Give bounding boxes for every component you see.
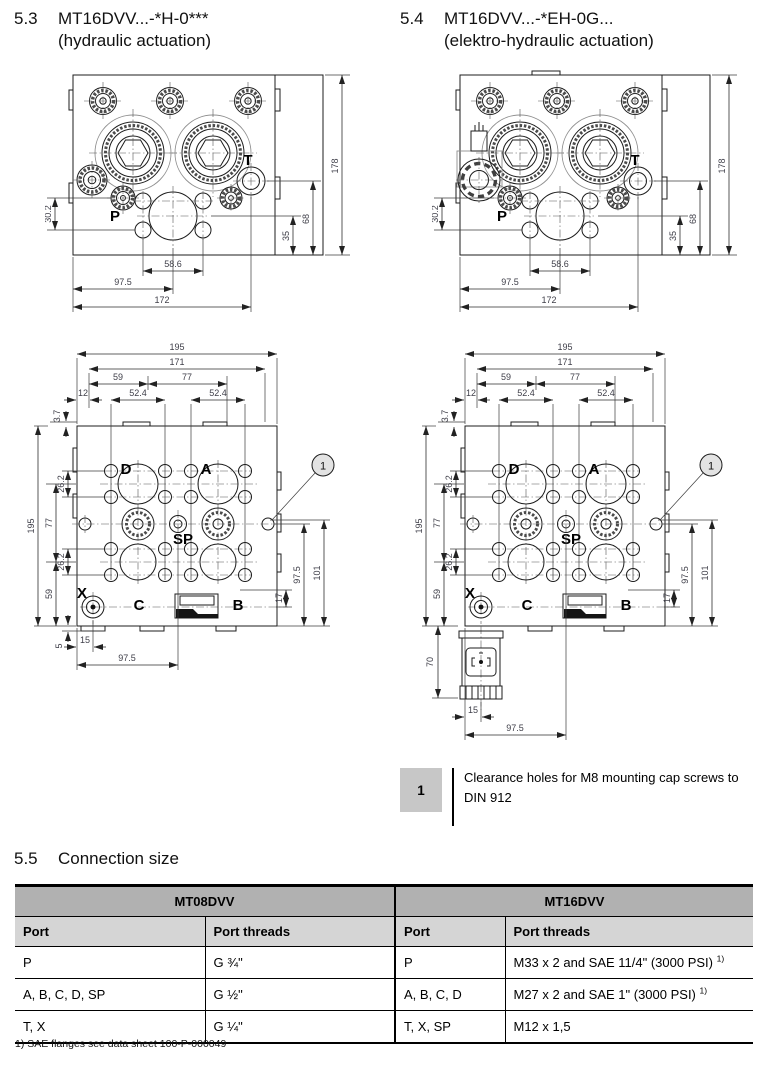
dim-171: 171	[557, 357, 572, 367]
cell-port-mt08: P	[15, 947, 205, 979]
dim-97-5-right: 97.5	[292, 566, 302, 584]
cell-port-mt16: A, B, C, D	[395, 979, 505, 1011]
dim-172: 172	[154, 295, 169, 305]
port-label-sp: SP	[561, 531, 581, 548]
cell-threads-mt16: M12 x 1,5	[505, 1011, 753, 1044]
callout-1-label: 1	[708, 461, 714, 473]
p-flange	[133, 186, 213, 246]
dim-17: 17	[274, 593, 284, 603]
dimensions: 195 171 59 77 12 52.4 52.4 3.7 195 77	[414, 342, 718, 740]
dim-52-4-a: 52.4	[209, 388, 227, 398]
dim-26-2-a: 26.2	[444, 475, 454, 493]
dim-195-top: 195	[557, 342, 572, 352]
dim-3-7: 3.7	[52, 410, 62, 423]
dim-35: 35	[668, 231, 678, 241]
dim-178: 178	[330, 158, 340, 173]
dim-15: 15	[468, 705, 478, 715]
main-cartridge-ports	[89, 109, 257, 197]
port-label-c: C	[134, 597, 145, 614]
mounting-bolts	[84, 82, 267, 120]
dim-172: 172	[541, 295, 556, 305]
section-54-heading: 5.4 MT16DVV...-*EH-0G... (elektro-hydrau…	[400, 8, 654, 52]
dim-77-top: 77	[182, 372, 192, 382]
port-label-a: A	[589, 461, 600, 478]
centerlines	[460, 404, 676, 624]
dim-59-top: 59	[113, 372, 123, 382]
drawing-53-bottom-view: D A SP C B X 1	[20, 332, 352, 677]
port-x: X	[77, 585, 104, 618]
cell-threads-mt16: M27 x 2 and SAE 1" (3000 PSI) 1)	[505, 979, 753, 1011]
dim-171: 171	[169, 357, 184, 367]
main-cartridge-ports	[476, 109, 644, 197]
port-label-sp: SP	[173, 531, 193, 548]
dim-35: 35	[281, 231, 291, 241]
table-row: P G ¾" P M33 x 2 and SAE 11/4" (3000 PSI…	[15, 947, 753, 979]
dim-59-left: 59	[44, 589, 54, 599]
section-53-number: 5.3	[14, 8, 58, 52]
cell-port-mt08: A, B, C, D, SP	[15, 979, 205, 1011]
dim-26-2-b: 26.2	[56, 553, 66, 571]
dim-12: 12	[466, 388, 476, 398]
dim-195-left: 195	[26, 518, 36, 533]
drawing-54-bottom-view: D A SP C B X	[408, 332, 740, 752]
section-54-code: MT16DVV...-*EH-0G...	[444, 9, 613, 28]
dim-97-5-bottom: 97.5	[506, 723, 524, 733]
dim-52-4-d: 52.4	[129, 388, 147, 398]
section-54-subtitle: (elektro-hydraulic actuation)	[444, 31, 654, 50]
col-header-threads-mt16: Port threads	[505, 917, 753, 947]
cell-threads-mt08: G ¾"	[205, 947, 395, 979]
solenoid-actuator	[459, 626, 503, 710]
section-53-subtitle: (hydraulic actuation)	[58, 31, 211, 50]
dim-101: 101	[700, 565, 710, 580]
footnote-ref: 1)	[717, 954, 725, 964]
dim-97-5: 97.5	[114, 277, 132, 287]
dim-12: 12	[78, 388, 88, 398]
dim-97-5-right: 97.5	[680, 566, 690, 584]
dim-52-4-a: 52.4	[597, 388, 615, 398]
mounting-bolts	[471, 82, 654, 120]
dim-26-2-a: 26.2	[56, 475, 66, 493]
col-header-port-mt16: Port	[395, 917, 505, 947]
table-footnote: 1) SAE flanges see data sheet 100-P-0000…	[15, 1038, 226, 1050]
dim-30-2: 30.2	[45, 205, 53, 223]
port-label-c: C	[522, 597, 533, 614]
port-x: X	[465, 585, 492, 618]
col-header-threads-mt08: Port threads	[205, 917, 395, 947]
port-label-t: T	[630, 152, 639, 169]
dim-15: 15	[80, 635, 90, 645]
port-label-x: X	[77, 585, 87, 602]
table-group-mt16dvv: MT16DVV	[395, 886, 753, 917]
dim-77-left: 77	[44, 518, 54, 528]
dim-59-left: 59	[432, 589, 442, 599]
col-header-port-mt08: Port	[15, 917, 205, 947]
port-p: P	[494, 182, 526, 225]
dim-59-top: 59	[501, 372, 511, 382]
table-row: A, B, C, D, SP G ½" A, B, C, D M27 x 2 a…	[15, 979, 753, 1011]
p-flange	[520, 186, 600, 246]
dim-178: 178	[717, 158, 727, 173]
port-label-d: D	[121, 461, 132, 478]
port-p: P	[107, 182, 139, 225]
ports-d-a: D A	[493, 461, 640, 504]
cell-port-mt16: T, X, SP	[395, 1011, 505, 1044]
port-label-p: P	[497, 208, 507, 225]
dim-77-top: 77	[570, 372, 580, 382]
note-badge: 1	[400, 768, 442, 812]
port-label-a: A	[201, 461, 212, 478]
port-label-b: B	[621, 597, 632, 614]
section-55-title: Connection size	[58, 848, 179, 870]
dim-97-5: 97.5	[501, 277, 519, 287]
dim-68: 68	[688, 214, 698, 224]
cell-threads-mt08: G ½"	[205, 979, 395, 1011]
cell-port-mt16: P	[395, 947, 505, 979]
dim-101: 101	[312, 565, 322, 580]
footnote-ref: 1)	[700, 986, 708, 996]
clearance-note: 1 Clearance holes for M8 mounting cap sc…	[400, 768, 762, 826]
table-group-mt08dvv: MT08DVV	[15, 886, 395, 917]
datasheet-page: 5.3 MT16DVV...-*H-0*** (hydraulic actuat…	[0, 0, 767, 1072]
port-label-x: X	[465, 585, 475, 602]
cell-threads-mt08: G ¼"	[205, 1011, 395, 1044]
dim-97-5-bottom: 97.5	[118, 653, 136, 663]
port-label-p: P	[110, 208, 120, 225]
note-divider	[452, 768, 454, 826]
dim-26-2-b: 26.2	[444, 553, 454, 571]
section-55-number: 5.5	[14, 848, 58, 870]
port-label-b: B	[233, 597, 244, 614]
port-label-d: D	[509, 461, 520, 478]
connection-size-table: MT08DVV MT16DVV Port Port threads Port P…	[15, 884, 753, 1044]
section-53-heading: 5.3 MT16DVV...-*H-0*** (hydraulic actuat…	[14, 8, 211, 52]
lever-connector	[175, 594, 218, 618]
cell-threads-mt16: M33 x 2 and SAE 11/4" (3000 PSI) 1)	[505, 947, 753, 979]
dim-17: 17	[662, 593, 672, 603]
ports-d-a: D A	[105, 461, 252, 504]
drawing-53-top-view: P T 30.2 35 68 178	[45, 65, 390, 317]
dim-5: 5	[54, 643, 64, 648]
section-53-code: MT16DVV...-*H-0***	[58, 9, 209, 28]
lever-connector	[563, 594, 606, 618]
dim-52-4-d: 52.4	[517, 388, 535, 398]
dim-30-2: 30.2	[432, 205, 440, 223]
dim-70: 70	[425, 657, 435, 667]
note-text: Clearance holes for M8 mounting cap scre…	[464, 768, 762, 807]
callout-1-label: 1	[320, 461, 326, 473]
port-label-t: T	[243, 152, 252, 169]
dim-195-left: 195	[414, 518, 424, 533]
dimensions: 30.2 35 68 178 58.6 97.5 172	[45, 75, 350, 312]
dimensions: 30.2 35 68 178 58.6 97.5 172	[432, 75, 737, 312]
dim-3-7: 3.7	[440, 410, 450, 423]
section-54-number: 5.4	[400, 8, 444, 52]
valve-block-outline	[456, 71, 710, 255]
drawing-54-top-view: P T 30.2 35 68 178	[432, 65, 767, 317]
dim-68: 68	[301, 214, 311, 224]
section-55-heading: 5.5 Connection size	[14, 848, 179, 870]
dim-77-left: 77	[432, 518, 442, 528]
dim-195-top: 195	[169, 342, 184, 352]
centerlines	[72, 404, 288, 624]
